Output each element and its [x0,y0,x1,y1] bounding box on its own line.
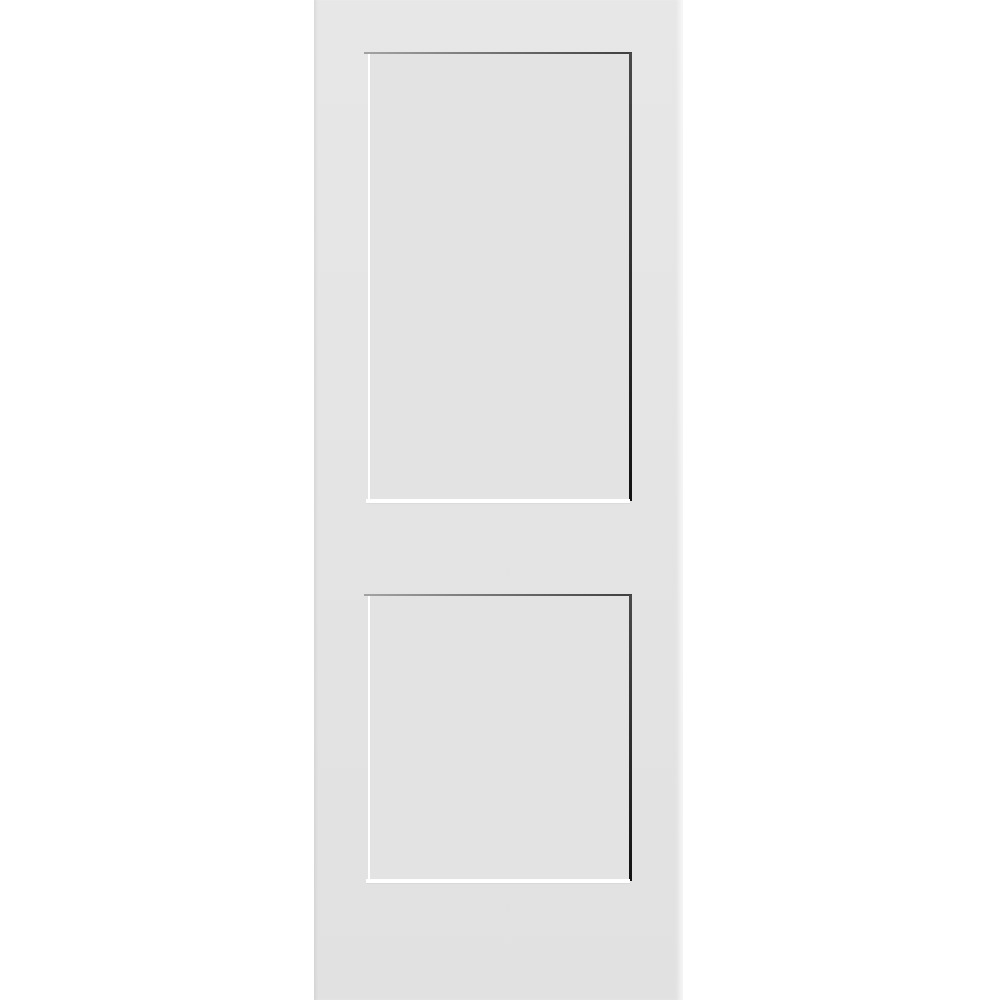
door-panel-top [368,52,632,503]
panel-right-shadow-edge [629,53,632,501]
panel-left-highlight-edge [368,596,370,880]
panel-top-shadow-edge [364,52,632,54]
door-slab [314,0,683,1000]
panel-bottom-highlight-edge [366,499,630,503]
door-panel-bottom [368,594,632,883]
panel-left-highlight-edge [368,54,370,500]
panel-bottom-highlight-edge [366,879,630,883]
panel-right-shadow-edge [629,595,632,881]
product-image [0,0,1000,1000]
panel-top-shadow-edge [364,594,632,596]
